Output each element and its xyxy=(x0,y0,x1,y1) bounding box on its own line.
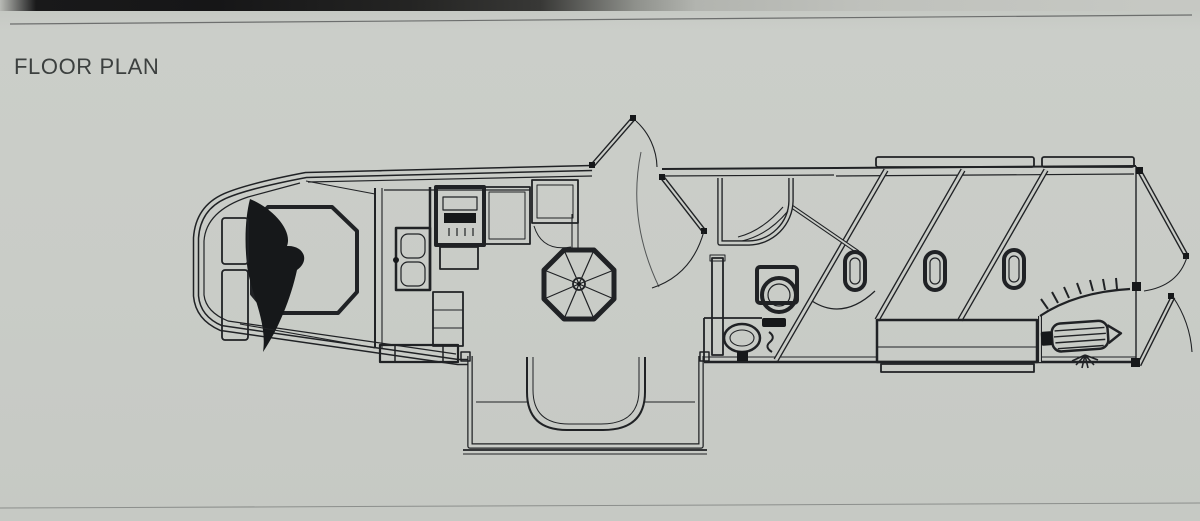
divider-line xyxy=(10,15,1192,24)
double-sink xyxy=(393,228,430,290)
bed-blanket xyxy=(246,199,305,352)
saddle-rack xyxy=(1040,319,1122,353)
trailer-outline xyxy=(196,166,1137,362)
entry-steps xyxy=(433,292,463,346)
oven xyxy=(440,247,478,269)
bridle-hooks xyxy=(1041,278,1117,309)
hay-shelf-wall xyxy=(791,206,858,252)
rear-doors xyxy=(1131,167,1192,367)
pantry-cabinet xyxy=(532,180,578,248)
wheel-well-bench xyxy=(877,320,1037,372)
horse-stall-dividers xyxy=(877,170,1046,320)
floor-plan-drawing xyxy=(0,0,1200,521)
bottom-divider-line xyxy=(0,503,1200,508)
sofa-slideout xyxy=(461,352,709,454)
stall-gate-arc xyxy=(812,291,875,309)
range-stove xyxy=(436,187,484,245)
corner-shower xyxy=(720,178,791,243)
linen-cabinet xyxy=(710,255,725,355)
interior-door xyxy=(637,152,707,288)
pedestal-table xyxy=(544,214,614,319)
toilet xyxy=(757,267,797,312)
entry-door xyxy=(589,115,657,168)
listing-page: { "page": { "background": "#c9ccc7", "li… xyxy=(0,0,1200,521)
refrigerator xyxy=(484,187,530,244)
